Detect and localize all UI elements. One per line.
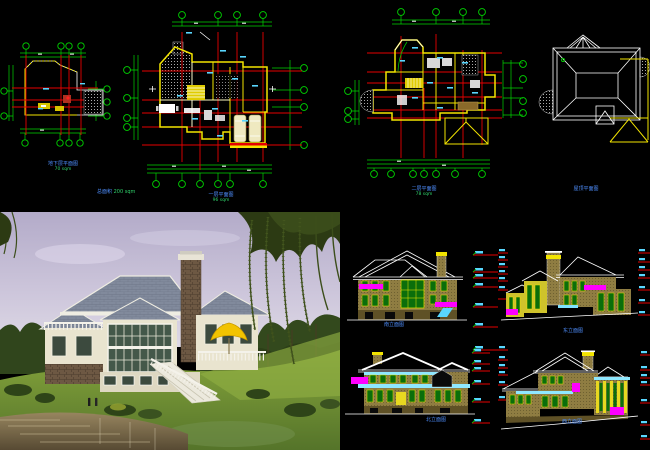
south-elevation-caption: 南立面图 — [369, 322, 419, 328]
stair — [187, 85, 205, 100]
left-window — [76, 336, 92, 356]
lower-roof-outline — [445, 118, 488, 144]
trim-band — [516, 391, 573, 394]
balcony-hatch-right — [462, 55, 478, 75]
railing-band — [610, 407, 624, 415]
first-floor-plan-drawing — [122, 0, 340, 192]
basement-window — [122, 376, 134, 385]
chimney-top — [180, 251, 202, 255]
balcony-hatch-left — [539, 90, 553, 114]
trim-band — [594, 377, 630, 380]
west-elevation-drawing — [498, 343, 650, 450]
villa-photo-rendering — [0, 212, 340, 450]
roof-edge-below — [398, 42, 407, 71]
chimney-cap — [178, 254, 204, 260]
caption-title: 屋顶平面图 — [573, 186, 598, 192]
basement-floor-plan-drawing — [0, 6, 125, 156]
railing-band — [506, 309, 518, 315]
left-window — [52, 336, 66, 356]
railing-band — [584, 285, 606, 290]
basement-plan-caption: 地下层平面图 70 sqm — [30, 161, 96, 173]
basement-window — [104, 376, 116, 385]
chimney-top — [581, 351, 595, 353]
trim-band-upper — [364, 372, 444, 375]
roof-outline — [553, 35, 640, 124]
level-lines — [472, 349, 490, 423]
stair — [405, 78, 423, 88]
total-area-note: 总面积 200 sqm — [97, 188, 135, 195]
roof-plan-caption: 屋顶平面图 — [558, 186, 614, 192]
level-lines-right — [638, 249, 650, 315]
total-area-label: 总面积 — [97, 189, 112, 195]
caption-title: 南立面图 — [384, 322, 404, 328]
balcony-hatch-left — [360, 90, 373, 112]
kitchen-fixtures — [184, 108, 225, 121]
cloud — [130, 230, 240, 246]
chimney-cap — [436, 252, 447, 256]
grid-lines — [142, 32, 302, 170]
floor-band — [108, 346, 172, 349]
total-area-value: 200 sqm — [114, 189, 136, 195]
second-floor-plan-drawing — [342, 0, 530, 200]
chimney-cap — [582, 352, 594, 356]
caption-title: 东立面图 — [563, 328, 583, 334]
caption-area: 96 sqm — [193, 198, 249, 204]
north-elevation-caption: 北立面图 — [411, 417, 461, 423]
trim-band — [358, 384, 470, 388]
hall-hatch — [214, 74, 239, 98]
chimney-band — [546, 255, 561, 259]
railing-band — [435, 302, 457, 307]
garage-cars — [230, 115, 267, 148]
level-lines-right — [640, 351, 650, 439]
caption-area: 78 sqm — [396, 192, 452, 198]
caption-title: 北立面图 — [426, 417, 446, 423]
level-lines — [473, 251, 498, 350]
railing-band — [351, 377, 368, 384]
table-symbol — [458, 102, 478, 110]
cad-sheet: 地下层平面图 70 sqm 总面积 200 sqm 一层平面图 96 sqm 二… — [0, 0, 650, 450]
west-elevation-caption: 西立面图 — [547, 419, 597, 425]
left-wing-stone-base — [45, 364, 103, 384]
roof-plan-drawing — [518, 18, 650, 144]
chimney — [437, 254, 446, 277]
cloud — [35, 244, 125, 264]
second-floor-plan-caption: 二层平面图 78 sqm — [396, 186, 452, 198]
east-elevation-caption: 东立面图 — [548, 328, 598, 334]
stair-hatch — [84, 91, 102, 114]
trim-band — [558, 305, 578, 308]
south-elevation-drawing — [345, 240, 500, 360]
railing-band — [572, 383, 580, 392]
axis-bubbles — [520, 61, 527, 117]
chimney-cap — [372, 352, 383, 355]
dining-table — [156, 104, 179, 113]
level-lines-left — [498, 249, 508, 299]
first-floor-plan-caption: 一层平面图 96 sqm — [193, 192, 249, 204]
chimney-top — [545, 251, 562, 253]
caption-title: 西立面图 — [562, 419, 582, 425]
basement-window — [140, 376, 152, 385]
dimension-lines — [351, 15, 523, 171]
caption-area: 70 sqm — [30, 167, 96, 173]
column-marker — [66, 96, 69, 99]
railing-band — [359, 284, 383, 289]
